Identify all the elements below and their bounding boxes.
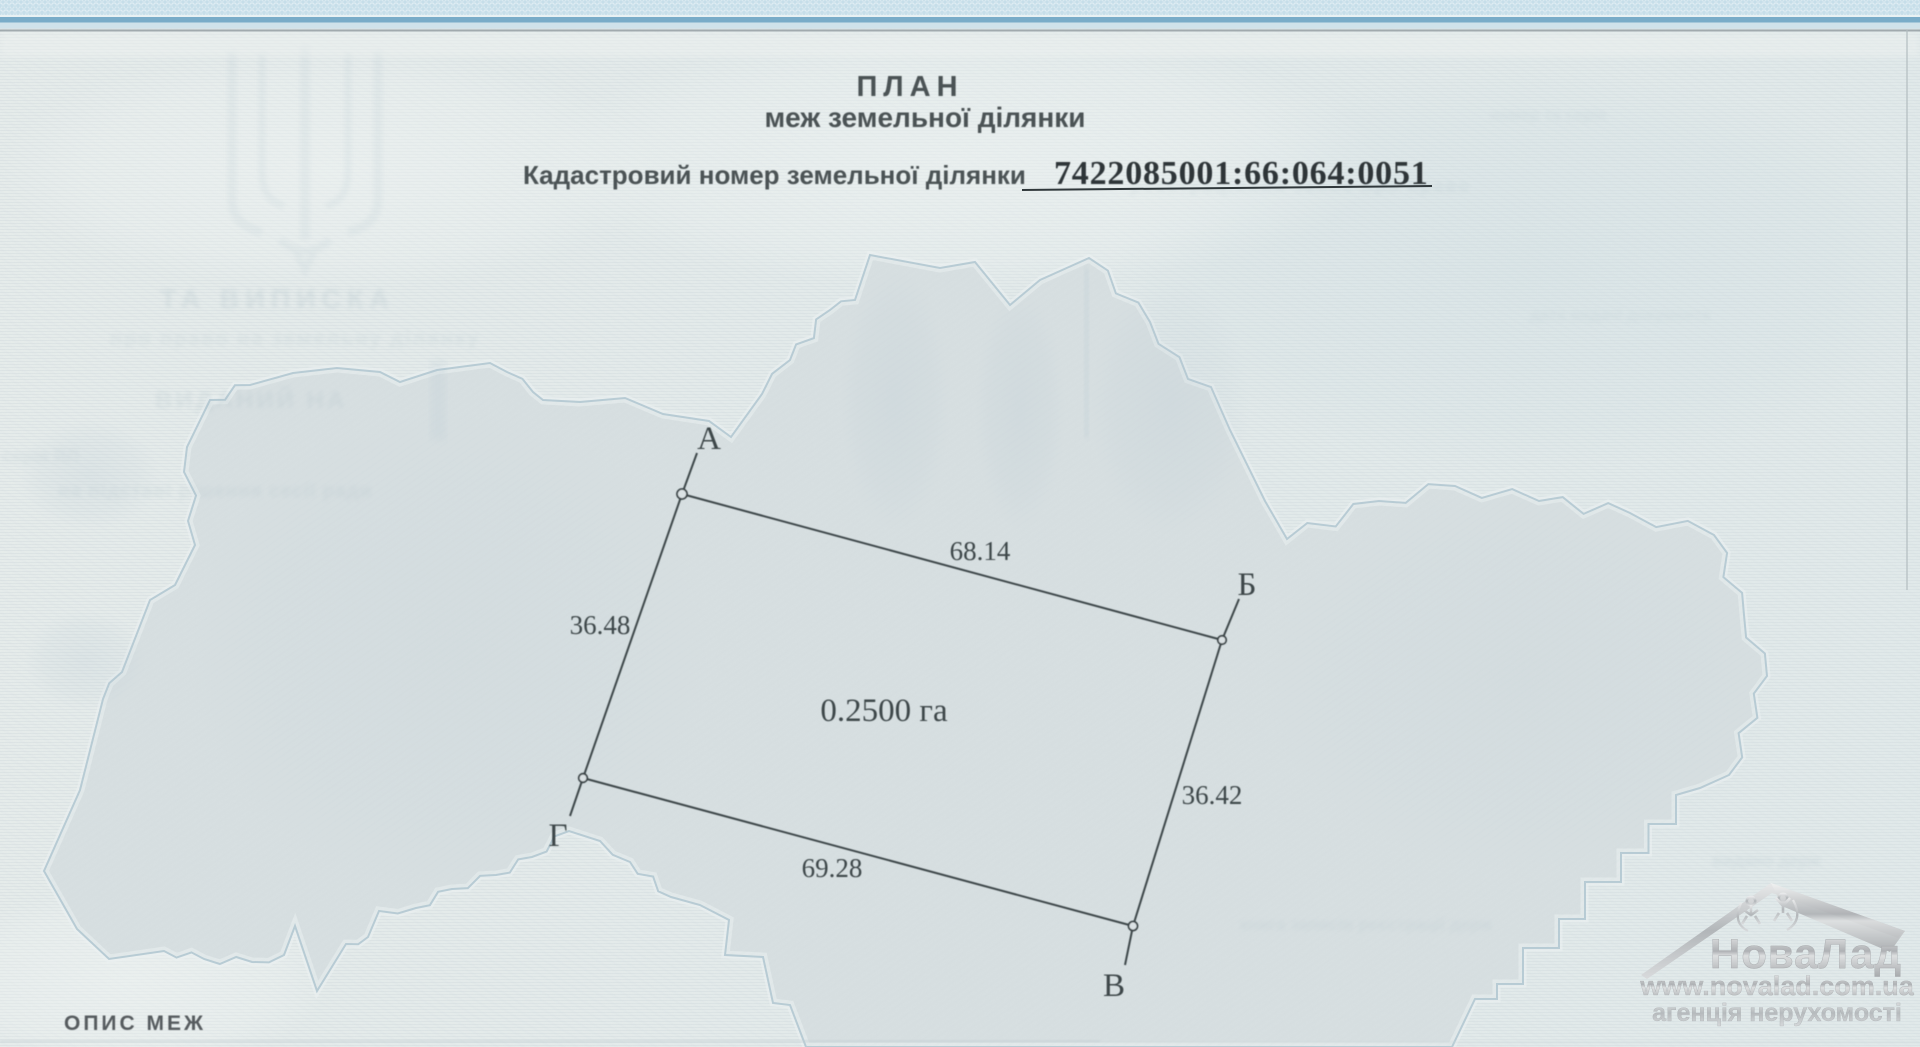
svg-text:7422085001:66:064:0051: 7422085001:66:064:0051 <box>1054 155 1429 192</box>
svg-text:агенція нерухомості: агенція нерухомості <box>1652 999 1902 1027</box>
svg-text:В: В <box>1103 968 1125 1004</box>
svg-text:НоваЛад: НоваЛад <box>1710 930 1902 977</box>
svg-text:Г: Г <box>548 818 567 854</box>
svg-text:ПЛАН: ПЛАН <box>856 71 963 103</box>
svg-text:www.novalad.com.ua: www.novalad.com.ua <box>1639 971 1915 1001</box>
svg-text:0.2500 га: 0.2500 га <box>820 693 948 729</box>
svg-text:книга записів реєстрації держ: книга записів реєстрації держ <box>1240 915 1493 934</box>
svg-text:68.14: 68.14 <box>950 536 1011 566</box>
svg-text:Б: Б <box>1238 567 1257 603</box>
svg-text:видано держ: видано держ <box>1712 851 1822 870</box>
svg-text:меж земельної ділянки: меж земельної ділянки <box>764 102 1085 133</box>
svg-text:36.48: 36.48 <box>570 610 631 640</box>
svg-text:ВИДАНИЙ НА: ВИДАНИЙ НА <box>155 386 347 414</box>
svg-text:А: А <box>697 421 721 457</box>
svg-text:36.42: 36.42 <box>1182 780 1243 810</box>
svg-text:ТА ВИПИСКА: ТА ВИПИСКА <box>160 284 395 314</box>
svg-text:про право на земельну ділянку: про право на земельну ділянку <box>110 328 480 350</box>
svg-text:номер та серія: номер та серія <box>1490 107 1607 124</box>
svg-text:дата видачі документа: дата видачі документа <box>1530 307 1711 324</box>
svg-text:ОПИС МЕЖ: ОПИС МЕЖ <box>64 1012 206 1035</box>
svg-text:Кадастровий номер земельної ді: Кадастровий номер земельної ділянки <box>523 160 1026 190</box>
svg-text:69.28: 69.28 <box>802 853 863 883</box>
